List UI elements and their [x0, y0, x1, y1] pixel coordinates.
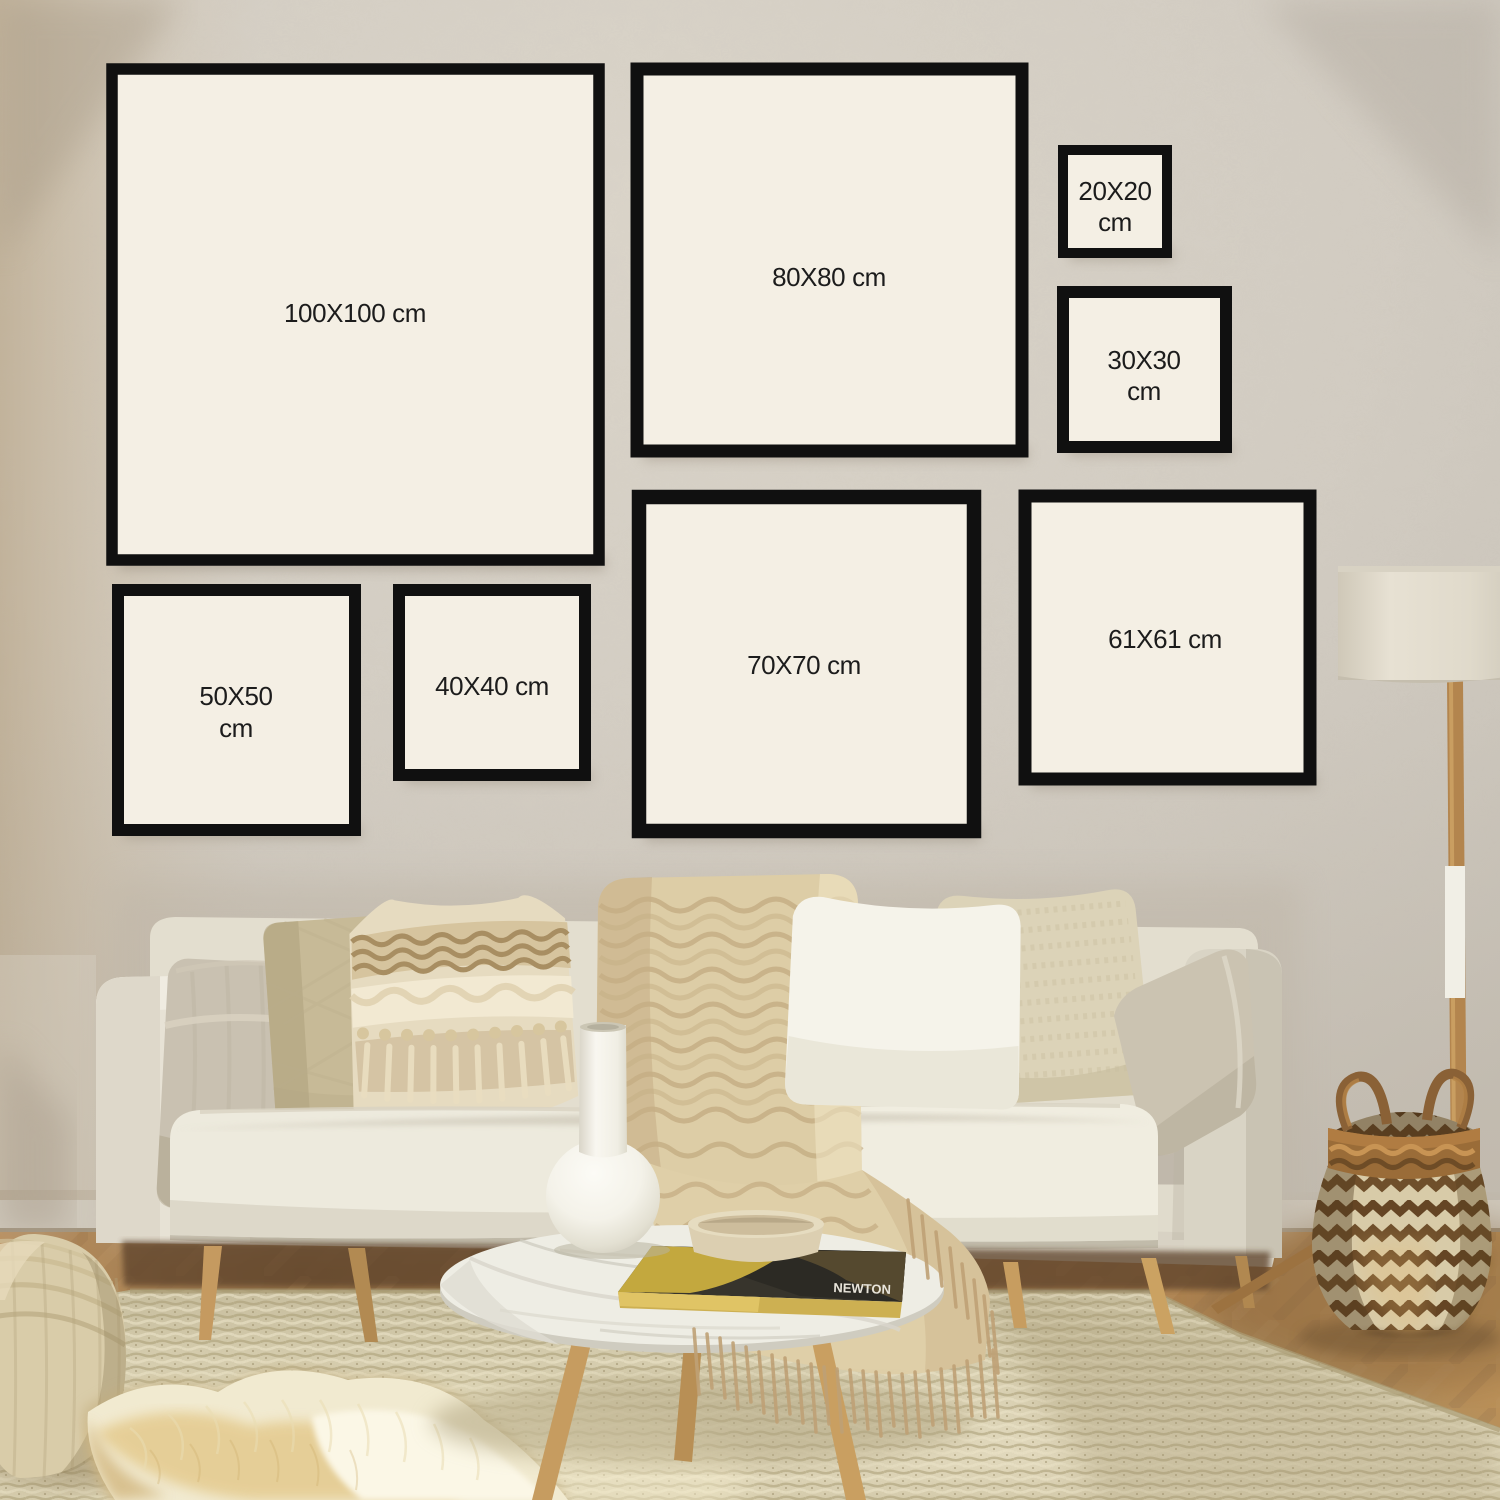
svg-text:40X40 cm: 40X40 cm [435, 671, 549, 701]
svg-text:cm: cm [1098, 207, 1132, 237]
svg-text:cm: cm [219, 713, 253, 743]
svg-text:NEWTON: NEWTON [833, 1280, 891, 1297]
svg-text:50X50: 50X50 [199, 681, 272, 711]
svg-text:61X61 cm: 61X61 cm [1108, 624, 1222, 654]
svg-text:80X80 cm: 80X80 cm [772, 262, 886, 292]
svg-text:30X30: 30X30 [1107, 345, 1180, 375]
svg-text:cm: cm [1127, 376, 1161, 406]
svg-text:100X100 cm: 100X100 cm [284, 298, 426, 328]
svg-text:20X20: 20X20 [1078, 176, 1151, 206]
svg-text:70X70 cm: 70X70 cm [747, 650, 861, 680]
